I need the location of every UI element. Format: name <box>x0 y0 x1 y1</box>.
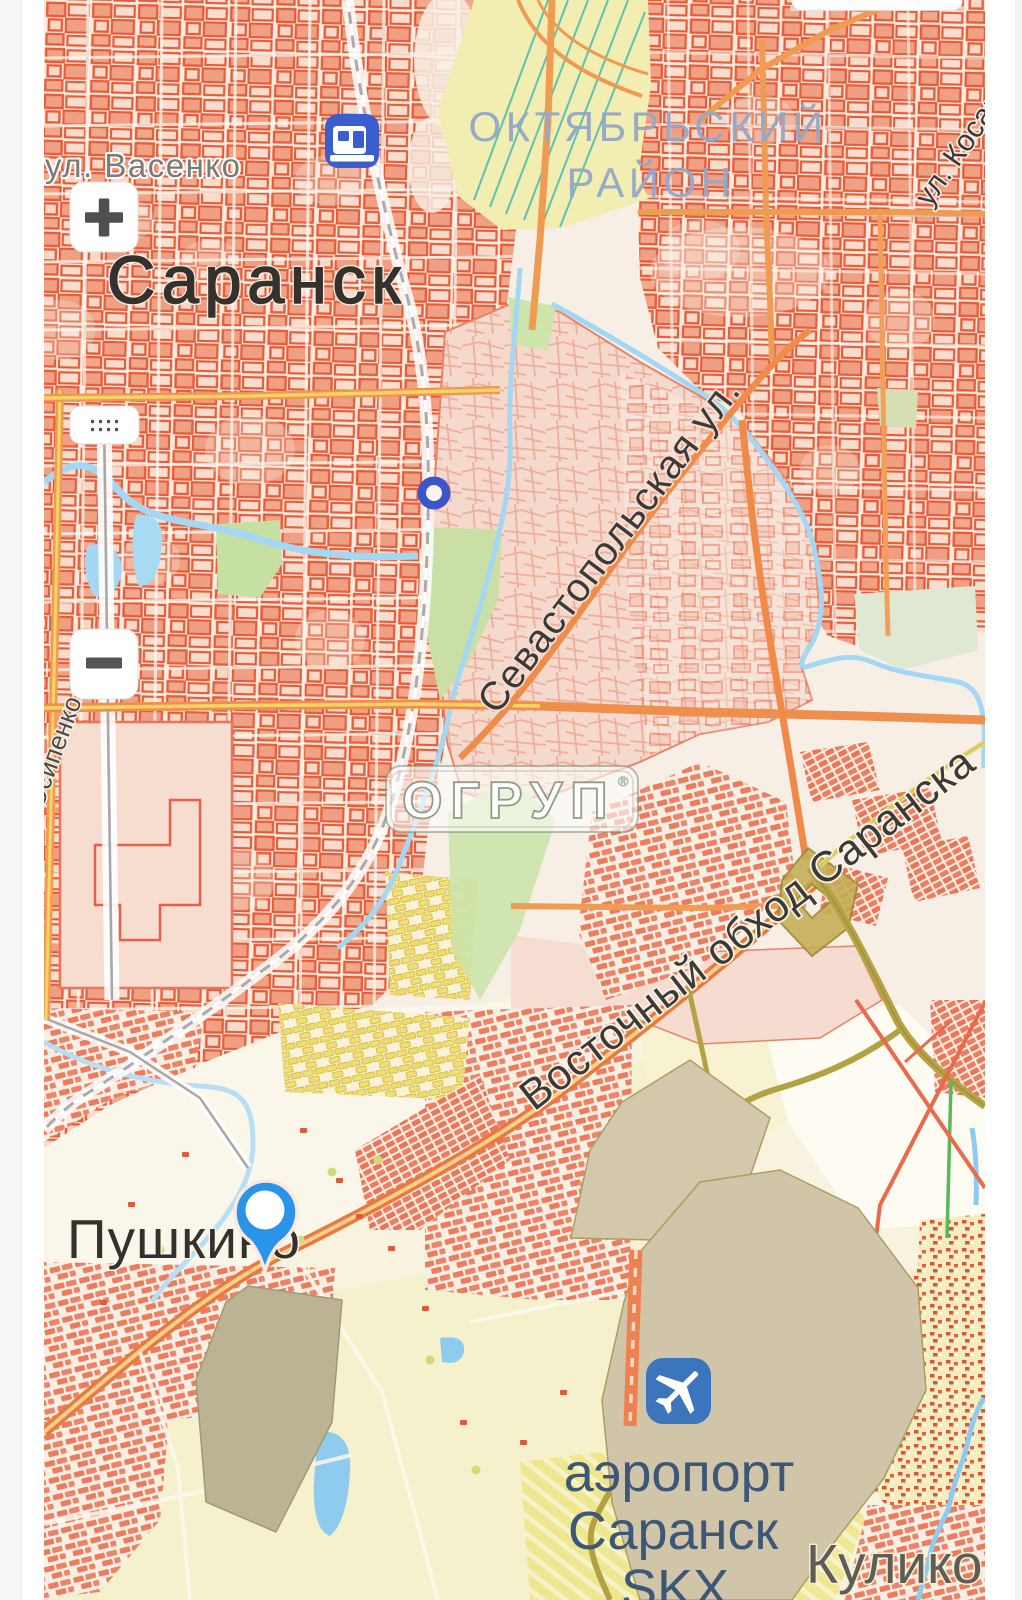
svg-text:РАЙОН: РАЙОН <box>567 158 736 206</box>
svg-text:Кулико: Кулико <box>806 1533 982 1595</box>
svg-text:ОГРУП: ОГРУП <box>402 772 616 830</box>
svg-text:Саранск: Саранск <box>568 1501 779 1561</box>
svg-text:ул. Васенко: ул. Васенко <box>45 147 241 184</box>
svg-text:Саранск: Саранск <box>107 243 406 318</box>
svg-text:аэропорт: аэропорт <box>564 1443 795 1503</box>
svg-text:SKX: SKX <box>621 1559 729 1600</box>
svg-text:ОКТЯБРЬСКИЙ: ОКТЯБРЬСКИЙ <box>468 102 827 150</box>
svg-text:®: ® <box>618 773 629 789</box>
